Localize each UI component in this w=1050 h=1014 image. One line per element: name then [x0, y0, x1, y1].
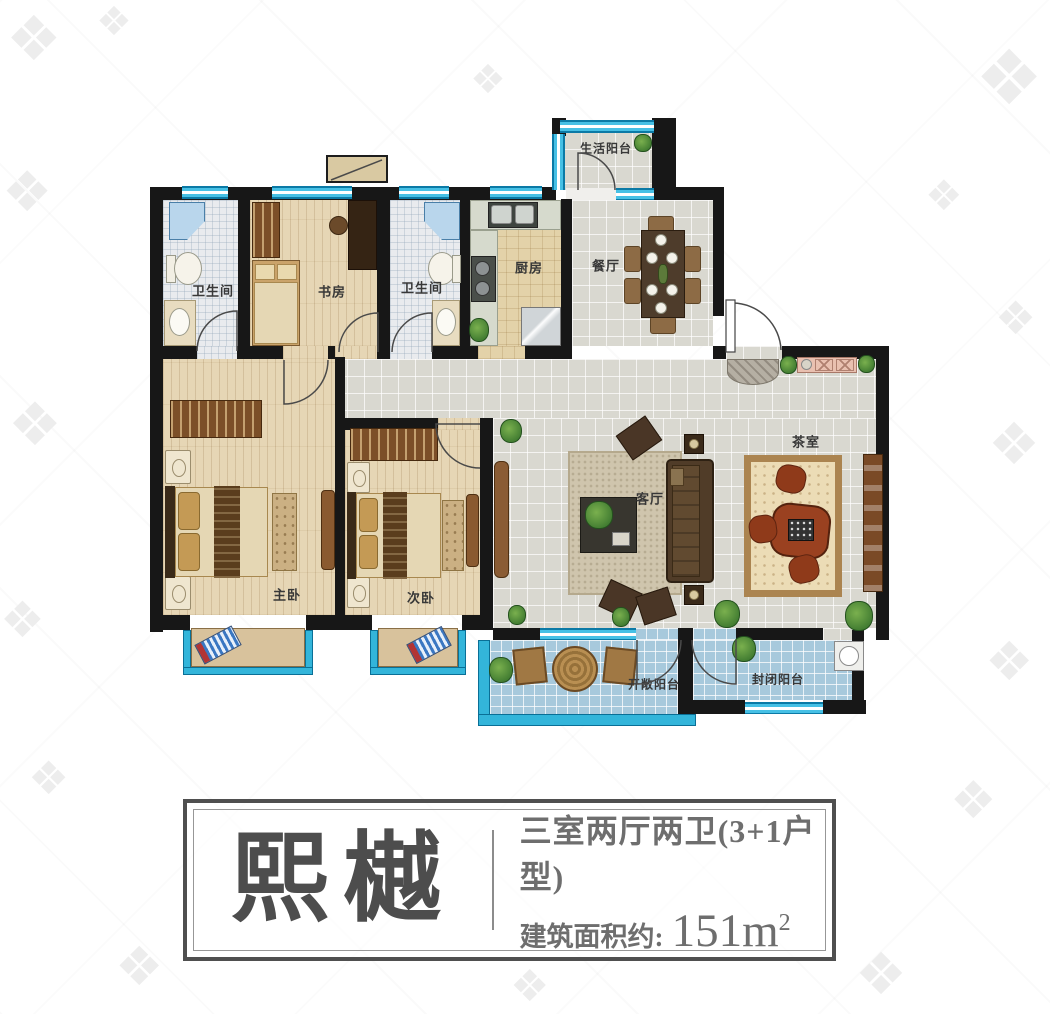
entry-door-leaf: [726, 300, 735, 352]
door-swings-overlay: [0, 0, 1050, 1014]
entry-door-arc: [733, 303, 781, 352]
door-arc: [578, 153, 615, 190]
door-arc: [392, 313, 432, 352]
door-arc: [692, 640, 736, 684]
door-arc: [197, 311, 237, 351]
door-arc: [637, 640, 681, 684]
door-arc: [339, 313, 378, 352]
door-arc: [284, 360, 328, 404]
ac-plate-line: [331, 160, 382, 180]
door-arc: [436, 424, 480, 468]
